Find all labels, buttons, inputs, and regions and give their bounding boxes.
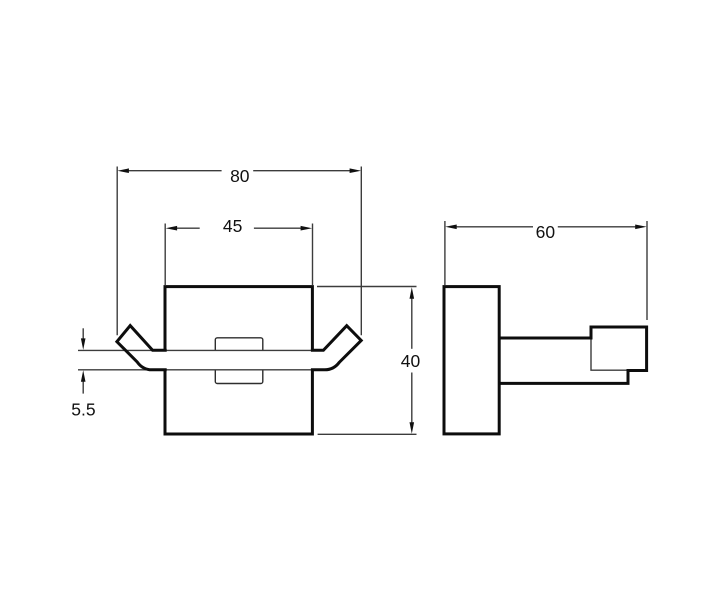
svg-text:80: 80 [230, 166, 250, 186]
svg-text:45: 45 [223, 216, 242, 236]
svg-text:5.5: 5.5 [71, 400, 95, 420]
svg-text:60: 60 [536, 222, 556, 242]
svg-text:40: 40 [401, 351, 421, 371]
